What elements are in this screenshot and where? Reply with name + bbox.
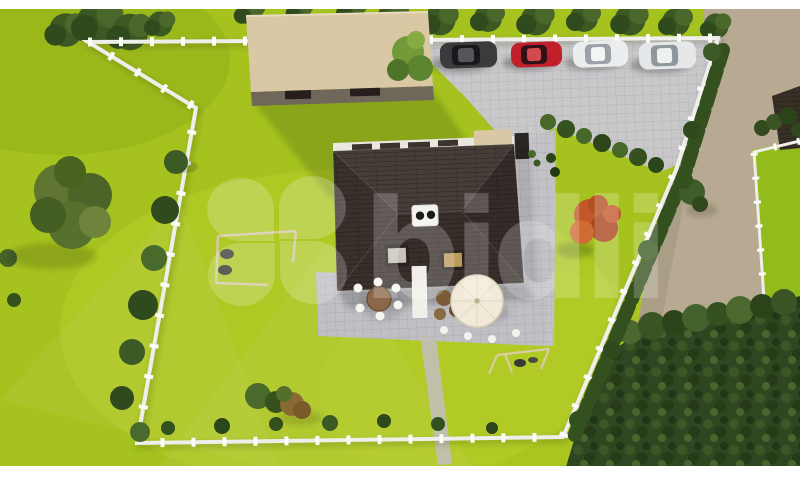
dining-table [367,287,391,311]
swing-seat [220,249,234,259]
skylight [385,245,410,267]
scene-svg [0,0,800,480]
chair [354,284,363,293]
bottom-margin [0,466,800,480]
swing-seat [218,265,232,275]
chair [356,304,365,313]
chimney [412,205,439,227]
shed-window [285,90,311,100]
house [333,129,541,309]
chair [392,284,401,293]
swing-seat [514,359,526,367]
chair [374,278,383,287]
terrace-divider-wall [412,266,428,318]
skylight [441,250,466,271]
top-margin [0,0,800,9]
entrance-plant [534,160,541,167]
swing-seat [528,357,538,363]
chair [394,301,403,310]
aerial-render: bidli [0,0,800,480]
chair [376,312,385,321]
